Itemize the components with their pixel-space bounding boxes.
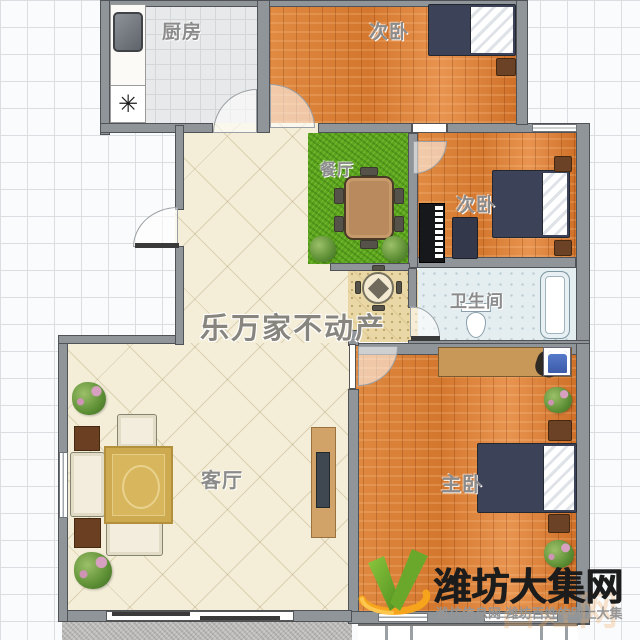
living-sofa — [70, 452, 105, 517]
wall-kitchen-bed1 — [257, 0, 270, 133]
wall-kitchen-bottom — [100, 123, 213, 133]
master-bed — [477, 443, 577, 513]
sliding-pane — [112, 612, 190, 616]
foyer-chair — [355, 281, 361, 294]
sliding-pane — [200, 616, 280, 620]
bed2-pillows — [542, 173, 567, 235]
master-nightstand-bottom — [548, 514, 570, 533]
bathroom-label: 卫生间 — [450, 287, 504, 312]
living-loveseat — [106, 519, 163, 556]
living-end-table — [74, 426, 100, 451]
balcony-post — [410, 626, 413, 640]
wall-bed1-right — [516, 0, 528, 125]
master-plant — [544, 387, 572, 413]
piano-keys — [435, 206, 443, 260]
floorplan-canvas: ✳ 厨房 次卧 餐厅 次卧 卫生间 — [0, 0, 640, 640]
bed2 — [492, 170, 570, 238]
entry-door-leaf — [135, 243, 179, 248]
dining-label: 餐厅 — [320, 156, 354, 180]
master-wardrobe — [543, 347, 571, 376]
bathtub — [540, 271, 570, 339]
wall-right-mid — [576, 123, 590, 355]
agency-watermark: 乐万家不动产 — [200, 305, 386, 347]
bed2-top-window — [532, 124, 577, 132]
wall-bath-left — [408, 268, 417, 308]
foyer-chair — [396, 281, 402, 294]
dining-chair — [394, 188, 404, 204]
site-logo-v-icon — [358, 543, 434, 625]
bed1-nightstand — [496, 58, 516, 76]
living-end-table — [74, 518, 101, 548]
bed2-nightstand-bottom — [554, 240, 572, 256]
wall-hall-left-lower — [175, 246, 184, 345]
living-plant — [72, 382, 106, 415]
tv — [316, 452, 330, 508]
kitchen-sink — [113, 12, 143, 52]
living-rug — [104, 446, 173, 524]
entry-door-arc — [133, 207, 178, 247]
dining-plant — [310, 236, 336, 262]
bed2-bench — [452, 217, 478, 259]
dining-chair — [360, 240, 378, 249]
living-label: 客厅 — [201, 464, 243, 493]
living-plant — [74, 552, 112, 589]
bedroom-mid-label: 次卧 — [456, 190, 496, 217]
foyer-chair — [372, 265, 385, 271]
piano — [419, 203, 445, 263]
stove-icon: ✳ — [110, 85, 146, 123]
dining-chair — [360, 167, 378, 176]
wall-bed1-bottom-a — [318, 123, 412, 133]
wall-kitchen-left — [100, 0, 110, 135]
bed2-door-leaf — [412, 123, 447, 133]
shirt-icon — [548, 351, 567, 373]
dining-chair — [334, 216, 344, 232]
bed2-nightstand-top — [554, 156, 572, 172]
stove-glyph: ✳ — [118, 90, 138, 118]
balcony-left-floor — [62, 621, 352, 640]
bedroom-top-label: 次卧 — [369, 17, 409, 44]
master-nightstand-top — [548, 420, 572, 441]
bed1 — [428, 4, 516, 56]
bed1-pillows — [470, 7, 513, 53]
kitchen-label: 厨房 — [162, 17, 202, 44]
master-bed-pillows — [543, 446, 574, 510]
bath-door-leaf — [411, 336, 440, 341]
wall-living-topleft — [58, 335, 183, 344]
dining-chair — [394, 216, 404, 232]
master-label: 主卧 — [441, 468, 483, 497]
wall-hall-left-upper — [175, 125, 184, 210]
wall-foyer-top — [330, 263, 410, 271]
dining-plant — [382, 236, 408, 262]
living-left-window — [59, 452, 68, 518]
site-tagline: 潍坊信息网 潍坊百姓的网上大集 — [436, 603, 623, 622]
dining-chair — [334, 188, 344, 204]
balcony-post — [385, 626, 388, 640]
dining-table — [344, 176, 394, 240]
living-armchair — [117, 414, 157, 448]
master-door-leaf — [349, 344, 356, 389]
